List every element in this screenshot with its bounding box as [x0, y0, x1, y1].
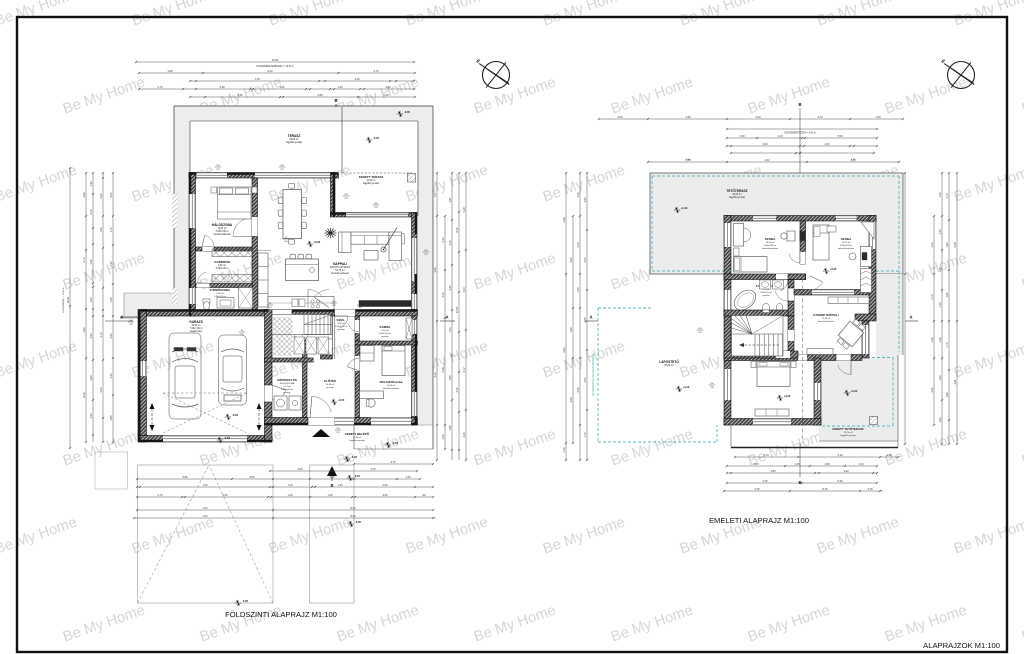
svg-text:2,30: 2,30 — [99, 193, 103, 199]
svg-text:2,70: 2,70 — [157, 493, 163, 497]
svg-text:EMELETI ALAPRAJZ M1:100: EMELETI ALAPRAJZ M1:100 — [709, 516, 809, 525]
svg-text:+1,33: +1,33 — [681, 206, 688, 210]
svg-text:1,45: 1,45 — [405, 475, 411, 479]
svg-text:1,10: 1,10 — [938, 302, 942, 308]
svg-text:60,05 m²: 60,05 m² — [732, 193, 741, 196]
svg-text:5,60: 5,60 — [562, 347, 566, 353]
svg-text:1,10: 1,10 — [777, 134, 783, 138]
svg-text:greslap: greslap — [283, 391, 291, 394]
svg-text:2,30: 2,30 — [89, 413, 93, 419]
svg-text:HÁLÓSZOBA: HÁLÓSZOBA — [212, 222, 233, 227]
svg-text:4,65: 4,65 — [317, 93, 323, 97]
svg-text:4,72: 4,72 — [462, 367, 466, 373]
svg-text:1,60: 1,60 — [448, 375, 452, 381]
svg-text:1,60: 1,60 — [938, 417, 942, 423]
svg-text:5,50: 5,50 — [837, 134, 843, 138]
svg-text:7,00: 7,00 — [202, 506, 208, 510]
svg-text:3,25: 3,25 — [433, 267, 437, 273]
svg-text:ELŐTÉR: ELŐTÉR — [324, 378, 337, 383]
svg-text:1,20: 1,20 — [287, 493, 293, 497]
svg-text:-0,02: -0,02 — [373, 136, 379, 140]
svg-text:GARDRÓB: GARDRÓB — [214, 259, 230, 264]
svg-text:12,45 m²: 12,45 m² — [387, 384, 396, 387]
svg-text:greslap: greslap — [337, 328, 345, 331]
svg-text:FÜRDŐSZOBA: FÜRDŐSZOBA — [210, 287, 231, 292]
svg-text:4,80: 4,80 — [770, 469, 776, 473]
svg-text:4,00: 4,00 — [222, 493, 228, 497]
svg-text:-0,02: -0,02 — [232, 413, 238, 417]
svg-text:laminált parketta: laminált parketta — [838, 247, 855, 250]
svg-text:1,45: 1,45 — [938, 267, 942, 273]
svg-text:60,60 m²: 60,60 m² — [664, 364, 673, 367]
svg-text:2,70: 2,70 — [157, 85, 163, 89]
svg-text:1,00: 1,00 — [441, 434, 445, 440]
svg-text:1,80: 1,80 — [448, 425, 452, 431]
svg-text:FÖLDSZINT KÜLSŐ KONTÚRVONALA: FÖLDSZINT KÜLSŐ KONTÚRVONALA — [592, 353, 595, 396]
svg-text:4,20: 4,20 — [455, 387, 459, 393]
svg-text:7,00: 7,00 — [202, 514, 208, 518]
svg-text:2,60: 2,60 — [82, 192, 86, 198]
svg-text:2,85: 2,85 — [109, 415, 113, 421]
svg-text:FEDETT TETŐTERASZ: FEDETT TETŐTERASZ — [832, 426, 864, 431]
svg-text:3,30x2,20 m: 3,30x2,20 m — [760, 292, 772, 294]
svg-text:5,80: 5,80 — [182, 475, 188, 479]
svg-text:fagyálló greslap: fagyálló greslap — [729, 196, 746, 199]
svg-text:2,10: 2,10 — [576, 242, 580, 248]
svg-text:3,40: 3,40 — [279, 85, 285, 89]
svg-text:KÖZL.: KÖZL. — [337, 318, 346, 322]
svg-text:1,50: 1,50 — [89, 297, 93, 303]
svg-text:3,05: 3,05 — [753, 462, 759, 466]
svg-text:fagyálló greslap: fagyálló greslap — [840, 434, 856, 437]
svg-text:2,70: 2,70 — [99, 332, 103, 338]
svg-text:2,10: 2,10 — [441, 292, 445, 298]
svg-text:16,90: 16,90 — [66, 296, 70, 303]
svg-text:fagyálló greslap: fagyálló greslap — [286, 141, 303, 144]
svg-text:vasalt beton: vasalt beton — [190, 330, 203, 333]
svg-text:12,00: 12,00 — [455, 306, 459, 313]
svg-text:4,40: 4,40 — [385, 85, 391, 89]
svg-text:8,25: 8,25 — [350, 514, 356, 518]
svg-text:FÖLDSZINTI ALAPRAJZ M1:100: FÖLDSZINTI ALAPRAJZ M1:100 — [225, 610, 337, 619]
svg-text:MOSÓSZOBA: MOSÓSZOBA — [280, 382, 295, 385]
svg-text:8,10: 8,10 — [82, 392, 86, 398]
svg-text:14,70 m²: 14,70 m² — [842, 241, 851, 244]
svg-text:2,60: 2,60 — [824, 142, 830, 146]
svg-text:3,28: 3,28 — [462, 207, 466, 213]
svg-text:ALAPRAJZOK M1:100: ALAPRAJZOK M1:100 — [923, 641, 1000, 650]
svg-text:3,30x3,90 m: 3,30x3,90 m — [216, 231, 229, 233]
svg-text:fagyálló greslap: fagyálló greslap — [349, 439, 365, 442]
svg-text:2,10: 2,10 — [930, 242, 934, 248]
svg-text:2,00: 2,00 — [583, 317, 587, 323]
svg-text:3,70: 3,70 — [390, 460, 396, 464]
svg-text:A: A — [909, 315, 912, 320]
svg-text:HOSSZMÉRETEZÉS = 8,00 m: HOSSZMÉRETEZÉS = 8,00 m — [784, 132, 816, 135]
svg-text:4,70: 4,70 — [763, 453, 769, 457]
svg-text:4,70: 4,70 — [373, 69, 379, 73]
svg-text:laminált parketta: laminált parketta — [214, 233, 232, 236]
svg-text:5,40: 5,40 — [754, 487, 760, 491]
svg-text:-0,05: -0,05 — [242, 599, 248, 603]
svg-text:1,15: 1,15 — [886, 453, 892, 457]
svg-text:2,26: 2,26 — [383, 93, 389, 97]
svg-text:3,30: 3,30 — [569, 257, 573, 263]
svg-text:5,70: 5,70 — [82, 257, 86, 263]
svg-text:2,40: 2,40 — [576, 387, 580, 393]
svg-text:GÉPÉSZET ÉS: GÉPÉSZET ÉS — [277, 377, 297, 382]
svg-text:1,98: 1,98 — [824, 462, 830, 466]
svg-text:laminált parketta: laminált parketta — [331, 272, 349, 275]
svg-text:A: A — [445, 315, 448, 320]
svg-text:5,08: 5,08 — [953, 242, 957, 248]
svg-text:1,70: 1,70 — [583, 432, 587, 438]
svg-text:GYEREK NAPPALI: GYEREK NAPPALI — [813, 313, 839, 317]
svg-text:1,10: 1,10 — [562, 447, 566, 453]
svg-text:3,30x2,00 m: 3,30x2,00 m — [216, 268, 229, 270]
svg-text:2,00: 2,00 — [583, 257, 587, 263]
svg-text:2,00: 2,00 — [583, 377, 587, 383]
svg-text:2,60: 2,60 — [109, 192, 113, 198]
svg-text:B: B — [334, 98, 337, 103]
svg-text:1,80: 1,80 — [569, 327, 573, 333]
svg-text:FEDETT TERASZ: FEDETT TERASZ — [359, 175, 384, 179]
svg-text:2,05: 2,05 — [297, 467, 303, 471]
svg-text:2,26: 2,26 — [462, 432, 466, 438]
svg-text:+3,30: +3,30 — [830, 267, 837, 271]
svg-text:KAMRA: KAMRA — [380, 325, 392, 329]
svg-text:1,55: 1,55 — [938, 192, 942, 198]
svg-text:28,08 m²: 28,08 m² — [289, 138, 298, 141]
svg-text:23,70 m²: 23,70 m² — [844, 431, 853, 434]
svg-text:2,60: 2,60 — [109, 333, 113, 339]
svg-text:10,45 m²: 10,45 m² — [326, 383, 335, 386]
svg-text:2,90: 2,90 — [89, 333, 93, 339]
svg-text:1,70: 1,70 — [945, 193, 949, 199]
svg-text:fagyálló greslap: fagyálló greslap — [363, 182, 380, 185]
svg-text:3,00: 3,00 — [382, 493, 388, 497]
svg-text:greslap: greslap — [326, 386, 334, 389]
svg-text:1,50: 1,50 — [938, 375, 942, 381]
svg-text:3,00: 3,00 — [617, 115, 623, 119]
svg-text:FEDETT BELÉPŐ: FEDETT BELÉPŐ — [345, 431, 370, 436]
svg-text:2,10: 2,10 — [441, 237, 445, 243]
svg-text:2,40x3,40 m: 2,40x3,40 m — [281, 389, 293, 391]
svg-text:4,10: 4,10 — [441, 367, 445, 373]
svg-text:3,36: 3,36 — [562, 217, 566, 223]
svg-text:3,50x4,20 m: 3,50x4,20 m — [840, 245, 852, 247]
svg-text:5,30: 5,30 — [837, 479, 843, 483]
svg-text:7,70: 7,70 — [254, 77, 260, 81]
svg-text:-0,02: -0,02 — [351, 455, 357, 459]
svg-text:16,90: 16,90 — [272, 58, 279, 62]
svg-text:1,80: 1,80 — [945, 242, 949, 248]
svg-text:11,30 m²: 11,30 m² — [367, 179, 376, 182]
svg-text:4,70: 4,70 — [817, 115, 823, 119]
svg-text:5,40: 5,40 — [762, 479, 768, 483]
svg-text:2,35: 2,35 — [109, 261, 113, 267]
svg-text:HOSSZMÉRETEZÉSSÉG = 16,90 m: HOSSZMÉRETEZÉSSÉG = 16,90 m — [256, 65, 294, 68]
svg-text:5,50: 5,50 — [249, 475, 255, 479]
svg-text:1,80: 1,80 — [945, 392, 949, 398]
svg-text:1,40: 1,40 — [89, 181, 93, 187]
svg-text:HOSSZMÉRET = 16,90 m: HOSSZMÉRET = 16,90 m — [62, 287, 65, 313]
svg-text:4,50: 4,50 — [237, 93, 243, 97]
svg-text:3,53: 3,53 — [462, 287, 466, 293]
svg-text:2,60: 2,60 — [89, 375, 93, 381]
svg-text:3,90: 3,90 — [843, 469, 849, 473]
svg-text:2,10: 2,10 — [448, 240, 452, 246]
svg-text:1,25: 1,25 — [576, 287, 580, 293]
svg-text:laminált parketta: laminált parketta — [383, 387, 400, 390]
svg-text:SZOBA: SZOBA — [765, 237, 776, 241]
svg-text:+0,00: +0,00 — [338, 398, 345, 402]
svg-text:3,70: 3,70 — [370, 467, 376, 471]
svg-text:DOLGOZÓszoba: DOLGOZÓszoba — [380, 379, 403, 384]
svg-text:1,35: 1,35 — [930, 337, 934, 343]
svg-text:13,00 m²: 13,00 m² — [766, 241, 775, 244]
svg-text:3,90: 3,90 — [762, 142, 768, 146]
svg-text:49,90 m²: 49,90 m² — [191, 324, 200, 327]
svg-text:8,15: 8,15 — [822, 487, 828, 491]
svg-text:1,00: 1,00 — [875, 115, 881, 119]
svg-text:1,87: 1,87 — [448, 197, 452, 203]
svg-text:7,00x7,00 m: 7,00x7,00 m — [190, 328, 203, 330]
svg-text:B: B — [330, 483, 333, 488]
svg-text:SZOBA: SZOBA — [841, 237, 852, 241]
svg-text:1,55: 1,55 — [576, 192, 580, 198]
svg-text:12,85 m²: 12,85 m² — [217, 227, 226, 230]
svg-text:2,25: 2,25 — [109, 373, 113, 379]
svg-text:1,50: 1,50 — [448, 327, 452, 333]
svg-text:4,62: 4,62 — [764, 158, 770, 162]
svg-text:3,08: 3,08 — [569, 397, 573, 403]
svg-text:4,12: 4,12 — [433, 372, 437, 378]
svg-text:3,30: 3,30 — [739, 134, 745, 138]
svg-text:8,30: 8,30 — [267, 69, 273, 73]
svg-text:1,75: 1,75 — [945, 342, 949, 348]
svg-text:3,10: 3,10 — [837, 453, 843, 457]
svg-text:1,70: 1,70 — [930, 294, 934, 300]
svg-text:1,30: 1,30 — [327, 493, 333, 497]
svg-text:7,14 m²: 7,14 m² — [283, 385, 291, 388]
svg-text:1,33: 1,33 — [858, 462, 864, 466]
svg-text:3,36 m²: 3,36 m² — [337, 322, 345, 325]
svg-text:6,60 m²: 6,60 m² — [218, 264, 226, 267]
svg-text:4,00x3,30 m: 4,00x3,30 m — [764, 245, 776, 247]
svg-text:1,20: 1,20 — [938, 229, 942, 235]
svg-text:2,60: 2,60 — [382, 483, 388, 487]
svg-text:±0,00: ±0,00 — [314, 240, 321, 244]
svg-text:-0,30: -0,30 — [355, 520, 361, 524]
svg-text:4,30: 4,30 — [685, 115, 691, 119]
svg-text:3,15: 3,15 — [867, 487, 873, 491]
svg-text:1,30: 1,30 — [938, 337, 942, 343]
svg-text:3,30: 3,30 — [219, 85, 225, 89]
svg-text:laminált parketta: laminált parketta — [818, 320, 835, 323]
svg-text:2,10: 2,10 — [89, 209, 93, 215]
svg-text:1,75: 1,75 — [109, 227, 113, 233]
svg-text:8,40: 8,40 — [350, 506, 356, 510]
svg-text:4,40: 4,40 — [354, 77, 360, 81]
svg-text:4,21: 4,21 — [953, 379, 957, 385]
svg-text:TETŐTERASZ: TETŐTERASZ — [726, 188, 747, 193]
svg-text:3,00x1,50 m: 3,00x1,50 m — [379, 333, 391, 335]
svg-text:8,10: 8,10 — [455, 227, 459, 233]
svg-text:+3,30: +3,30 — [851, 389, 858, 393]
svg-text:3,45: 3,45 — [329, 475, 335, 479]
svg-text:1,90: 1,90 — [99, 227, 103, 233]
svg-text:4,30: 4,30 — [755, 115, 761, 119]
svg-text:GARÁZS: GARÁZS — [189, 319, 202, 324]
svg-text:A: A — [120, 315, 123, 320]
svg-text:1,40: 1,40 — [337, 85, 343, 89]
svg-text:-0,02: -0,02 — [392, 441, 398, 445]
svg-text:1,95: 1,95 — [109, 297, 113, 303]
svg-text:B: B — [798, 102, 801, 107]
svg-text:greslap: greslap — [381, 335, 389, 338]
svg-text:-0,02: -0,02 — [224, 436, 230, 440]
svg-text:7,00: 7,00 — [202, 483, 208, 487]
svg-text:greslap: greslap — [763, 294, 771, 297]
svg-text:17,08 m²: 17,08 m² — [822, 317, 831, 320]
svg-text:3,50: 3,50 — [99, 387, 103, 393]
svg-text:2,90: 2,90 — [82, 327, 86, 333]
svg-text:LAPOSTETŐ: LAPOSTETŐ — [659, 359, 679, 364]
svg-text:1,30: 1,30 — [337, 483, 343, 487]
svg-text:4,50 m²: 4,50 m² — [381, 329, 389, 332]
svg-text:2,40: 2,40 — [89, 259, 93, 265]
svg-text:2,40x1,40 m: 2,40x1,40 m — [335, 326, 347, 328]
svg-text:-0,10: -0,10 — [354, 474, 360, 478]
svg-text:beépített szekrény: beépített szekrény — [255, 249, 271, 252]
svg-text:TERASZ: TERASZ — [288, 134, 301, 138]
svg-text:1,45: 1,45 — [794, 462, 800, 466]
svg-text:A: A — [589, 315, 592, 320]
svg-text:1,10: 1,10 — [287, 483, 293, 487]
svg-text:2,40: 2,40 — [448, 285, 452, 291]
svg-text:1,47: 1,47 — [433, 192, 437, 198]
svg-text:3,90: 3,90 — [167, 69, 173, 73]
svg-text:+3,30: +3,30 — [683, 385, 690, 389]
svg-text:1,90: 1,90 — [583, 197, 587, 203]
svg-text:+3,30: +3,30 — [784, 394, 791, 398]
svg-text:4,80 m²: 4,80 m² — [216, 292, 224, 295]
svg-text:2,40: 2,40 — [930, 387, 934, 393]
svg-text:1,85: 1,85 — [945, 292, 949, 298]
svg-text:laminált parketta: laminált parketta — [762, 247, 779, 250]
svg-text:-0,05: -0,05 — [404, 110, 410, 114]
